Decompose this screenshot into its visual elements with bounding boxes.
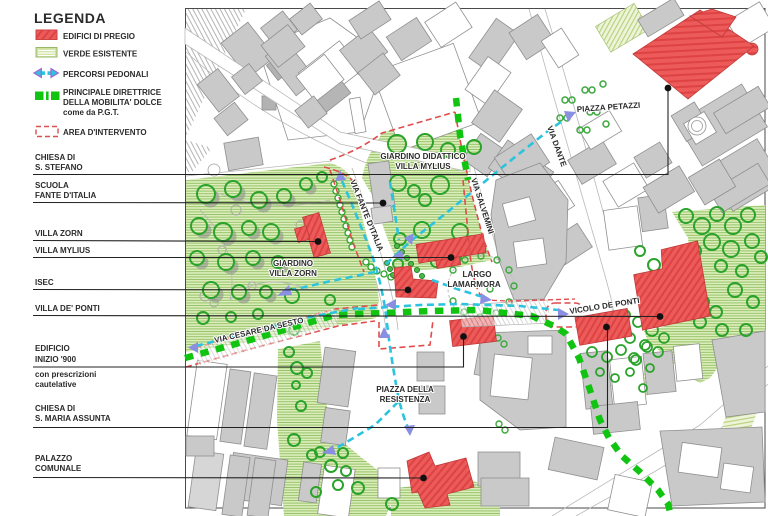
svg-text:EDIFICIO: EDIFICIO bbox=[35, 344, 70, 353]
svg-text:DELLA MOBILITA' DOLCE: DELLA MOBILITA' DOLCE bbox=[63, 98, 162, 107]
svg-text:come da P.G.T.: come da P.G.T. bbox=[63, 108, 119, 117]
svg-text:ISEC: ISEC bbox=[35, 278, 54, 287]
svg-text:INIZIO '900: INIZIO '900 bbox=[35, 355, 77, 364]
svg-text:FANTE D'ITALIA: FANTE D'ITALIA bbox=[35, 191, 97, 200]
svg-text:AREA D'INTERVENTO: AREA D'INTERVENTO bbox=[63, 128, 147, 137]
svg-text:RESISTENZA: RESISTENZA bbox=[380, 395, 431, 404]
svg-text:con prescrizioni: con prescrizioni bbox=[35, 370, 96, 379]
svg-text:GIARDINO DIDATTICO: GIARDINO DIDATTICO bbox=[380, 152, 465, 161]
svg-text:PERCORSI PEDONALI: PERCORSI PEDONALI bbox=[63, 70, 148, 79]
svg-text:VILLA ZORN: VILLA ZORN bbox=[269, 269, 317, 278]
svg-text:EDIFICI DI PREGIO: EDIFICI DI PREGIO bbox=[63, 32, 135, 41]
svg-text:LEGENDA: LEGENDA bbox=[34, 10, 106, 26]
svg-text:VILLA DE' PONTI: VILLA DE' PONTI bbox=[35, 304, 100, 313]
svg-text:VILLA ZORN: VILLA ZORN bbox=[35, 229, 83, 238]
svg-text:LARGO: LARGO bbox=[463, 270, 492, 279]
svg-text:LAMARMORA: LAMARMORA bbox=[447, 280, 501, 289]
svg-text:S. STEFANO: S. STEFANO bbox=[35, 163, 83, 172]
svg-text:CHIESA DI: CHIESA DI bbox=[35, 404, 75, 413]
svg-text:PALAZZO: PALAZZO bbox=[35, 454, 72, 463]
svg-text:VILLA MYLIUS: VILLA MYLIUS bbox=[395, 162, 451, 171]
svg-text:cautelative: cautelative bbox=[35, 380, 77, 389]
svg-text:VILLA MYLIUS: VILLA MYLIUS bbox=[35, 246, 91, 255]
svg-text:VERDE ESISTENTE: VERDE ESISTENTE bbox=[63, 50, 138, 59]
svg-text:PRINCIPALE DIRETTRICE: PRINCIPALE DIRETTRICE bbox=[63, 88, 162, 97]
svg-text:SCUOLA: SCUOLA bbox=[35, 181, 69, 190]
svg-text:CHIESA DI: CHIESA DI bbox=[35, 153, 75, 162]
svg-text:COMUNALE: COMUNALE bbox=[35, 464, 82, 473]
svg-text:PIAZZA DELLA: PIAZZA DELLA bbox=[376, 385, 434, 394]
svg-text:S. MARIA ASSUNTA: S. MARIA ASSUNTA bbox=[35, 414, 111, 423]
svg-text:GIARDINO: GIARDINO bbox=[273, 259, 313, 268]
